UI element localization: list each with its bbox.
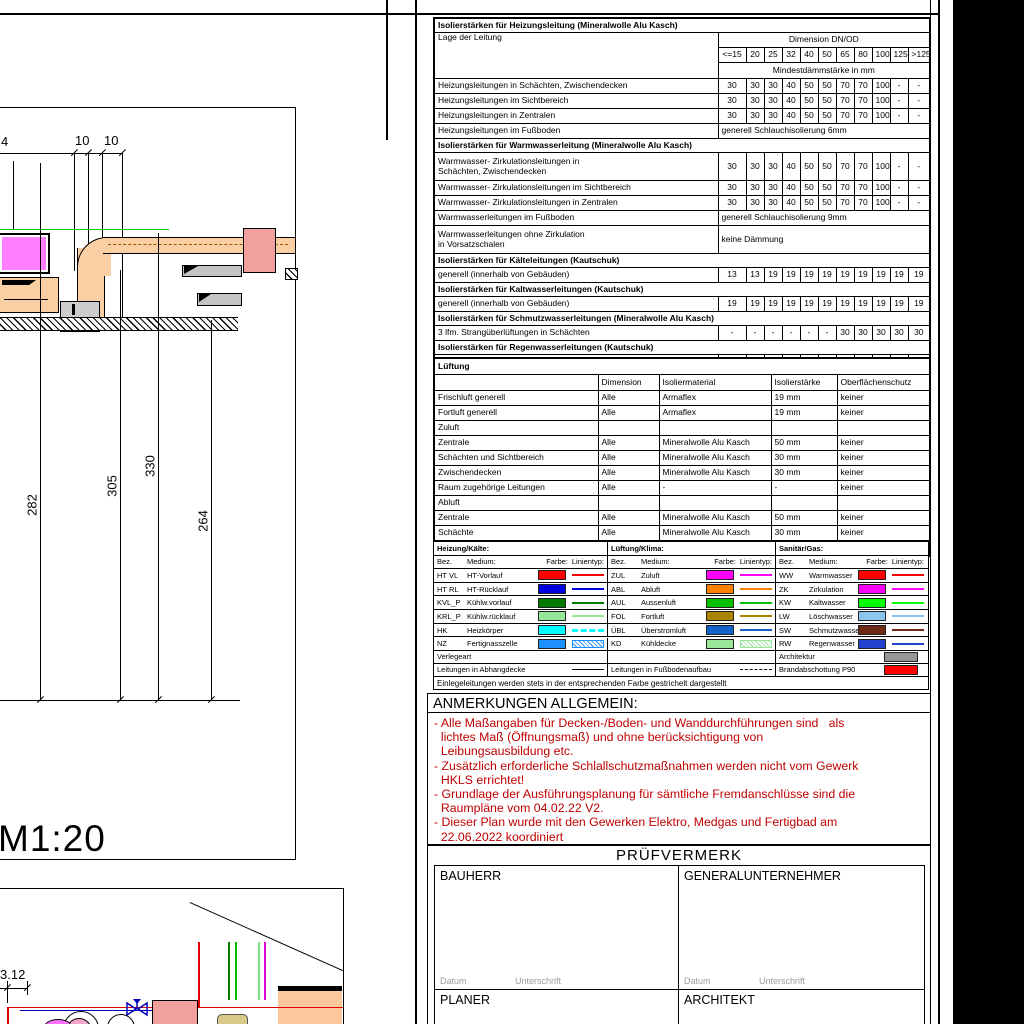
value-cell: keiner — [837, 406, 930, 421]
dim-ext — [7, 981, 8, 1003]
legend-item: ZULZuluft — [607, 569, 775, 582]
value-cell: 100 — [872, 79, 890, 94]
value-cell: Alle — [598, 436, 659, 451]
legend-item-medium: Zuluft — [641, 571, 706, 580]
verlegeart-label-cell: Verlegeart — [434, 651, 607, 663]
dim-value: 4 — [1, 135, 8, 148]
legend-linetype-hatch — [740, 640, 772, 648]
annotation-line: Leibungsausbildung etc. — [434, 744, 930, 758]
legend-linetype-line — [740, 629, 772, 631]
table-section-row: Lüftung — [434, 358, 930, 375]
unit-line — [4, 299, 48, 300]
legend-item-medium: Kühlw.rücklauf — [467, 612, 538, 621]
legend-item-medium: Aussenluft — [641, 598, 706, 607]
value-cell: 19 — [818, 297, 836, 312]
table-section-row: Isolierstärken für Regenwasserleitungen … — [434, 341, 930, 355]
row-label-cell: Heizungsleitungen in Schächten, Zwischen… — [434, 79, 718, 94]
row-label-cell: Warmwasserleitungen im Fußboden — [434, 211, 718, 226]
table-row: Abluft — [434, 496, 930, 511]
value-cell: 100 — [872, 94, 890, 109]
legend-item-medium: Überstromluft — [641, 626, 706, 635]
row-label-cell: Heizungsleitungen im Fußboden — [434, 124, 718, 139]
annotation-line: - Alle Maßangaben für Decken-/Boden- und… — [434, 716, 930, 730]
legend-linetype-line — [572, 602, 604, 604]
legend-column-header-row: Bez.Medium:Farbe:Linientyp:Bez.Medium:Fa… — [434, 556, 928, 570]
dim-size-cell: 125 — [890, 48, 908, 63]
value-cell: 70 — [854, 79, 872, 94]
value-cell: 30 — [746, 94, 764, 109]
legend-item-bez: HT VL — [437, 571, 467, 580]
value-cell: 50 — [800, 109, 818, 124]
legend-color-swatch — [538, 611, 566, 621]
legend-item-bez: KW — [779, 598, 809, 607]
value-cell: 19 — [836, 297, 854, 312]
legend-linetype-line — [892, 574, 924, 576]
value-cell: 19 — [890, 297, 908, 312]
value-cell: Zentrale — [434, 436, 598, 451]
legend-item: ÜBLÜberstromluft — [607, 624, 775, 637]
legend-color-swatch — [858, 639, 886, 649]
legend-color-swatch — [858, 598, 886, 608]
table-row: Zuluft — [434, 421, 930, 436]
value-cell: 70 — [836, 181, 854, 196]
value-cell — [598, 496, 659, 511]
legend-color-swatch — [538, 598, 566, 608]
section-title-cell: Isolierstärken für Kälteleitungen (Kauts… — [434, 254, 930, 268]
dim-size-cell: 65 — [836, 48, 854, 63]
value-cell: Mineralwolle Alu Kasch — [659, 466, 771, 481]
legend-linetype-line — [892, 602, 924, 604]
legend-linetype-line — [892, 643, 924, 645]
floor-slab — [0, 317, 238, 331]
value-cell: keiner — [837, 511, 930, 526]
table-row: Schächten und SichtbereichAlleMineralwol… — [434, 451, 930, 466]
value-cell: 30 — [718, 109, 746, 124]
legend-item-bez: AUL — [611, 598, 641, 607]
value-cell: Raum zugehörige Leitungen — [434, 481, 598, 496]
value-cell: 19 — [764, 297, 782, 312]
value-cell: 50 — [818, 79, 836, 94]
value-cell: 13 — [718, 268, 746, 283]
legend-col-bez: Bez. — [437, 557, 467, 566]
value-cell: Alle — [598, 406, 659, 421]
legend-item: NZFertignasszelle — [434, 638, 607, 651]
architektur-label: Architektur — [779, 652, 884, 661]
value-cell: 19 — [908, 268, 930, 283]
value-cell: 70 — [854, 109, 872, 124]
value-cell: 19 — [836, 268, 854, 283]
min-thickness-header-cell: Mindestdämmstärke in mm — [718, 63, 930, 79]
approval-title: PRÜFVERMERK — [428, 846, 930, 864]
value-cell: keiner — [837, 436, 930, 451]
legend-item: KDKühldecke — [607, 638, 775, 651]
legend-linetype-line — [892, 615, 924, 617]
column-header-cell: Oberflächenschutz — [837, 375, 930, 391]
legend-item-medium: HT-Rücklauf — [467, 585, 538, 594]
value-cell: 30 — [764, 109, 782, 124]
unterschrift-label: Unterschrift — [515, 976, 561, 986]
value-cell: 40 — [782, 181, 800, 196]
legend-color-swatch — [706, 570, 734, 580]
legend-item-bez: WW — [779, 571, 809, 580]
approval-cell-label: GENERALUNTERNEHMER — [684, 869, 841, 883]
value-cell: Fortluft generell — [434, 406, 598, 421]
table-row: Heizungsleitungen in Zentralen3030304050… — [434, 109, 930, 124]
value-cell: Mineralwolle Alu Kasch — [659, 451, 771, 466]
value-cell: Mineralwolle Alu Kasch — [659, 526, 771, 541]
fertignasszelle-unit — [0, 233, 50, 274]
value-cell: - — [800, 326, 818, 341]
value-cell: - — [908, 153, 930, 181]
section-title-cell: Isolierstärken für Regenwasserleitungen … — [434, 341, 930, 355]
lueftung-title-cell: Lüftung — [434, 358, 930, 375]
approval-cell-label: ARCHITEKT — [684, 993, 755, 1007]
damper-wedge — [199, 294, 211, 302]
legend-col-linientyp: Linientyp: — [892, 557, 924, 566]
value-cell: - — [908, 196, 930, 211]
fussboden-label: Leitungen in Fußbodenaufbau — [611, 665, 740, 674]
fire-collar — [243, 228, 276, 273]
legend-color-swatch — [858, 570, 886, 580]
value-cell: 70 — [854, 94, 872, 109]
value-cell: 19 — [800, 297, 818, 312]
column-header-cell: Isoliermaterial — [659, 375, 771, 391]
value-cell: 30 — [890, 326, 908, 341]
value-cell: - — [890, 109, 908, 124]
value-cell: keiner — [837, 526, 930, 541]
annotation-line: 22.06.2022 koordiniert — [434, 830, 930, 844]
legend-item-row: KVL_PKühlw.vorlaufAULAussenluftKWKaltwas… — [434, 596, 928, 610]
dim-value-264: 264 — [196, 510, 211, 532]
value-cell: 30 — [718, 196, 746, 211]
legend-linetype-line — [740, 615, 772, 617]
legend-table: Heizung/Kälte:Lüftung/Klima:Sanitär/Gas:… — [433, 541, 929, 690]
table-section-row: Isolierstärken für Kaltwasserleitungen (… — [434, 283, 930, 297]
value-cell: 40 — [782, 153, 800, 181]
riser-red — [198, 942, 200, 1008]
value-cell: 40 — [782, 94, 800, 109]
value-cell: 40 — [782, 109, 800, 124]
valve-icon — [124, 996, 150, 1018]
dimension-header-cell: Dimension DN/OD — [718, 33, 930, 48]
section-title-cell: Isolierstärken für Schmutzwasserleitunge… — [434, 312, 930, 326]
value-cell: 30 — [764, 196, 782, 211]
legend-item: ZKZirkulation — [775, 583, 927, 596]
dim-size-cell: <=15 — [718, 48, 746, 63]
value-cell: 30 — [872, 326, 890, 341]
value-cell: 30 — [764, 94, 782, 109]
legend-installation-row: Leitungen in AbhangdeckeLeitungen in Fuß… — [434, 664, 928, 677]
table-row: Frischluft generellAlleArmaflex19 mmkein… — [434, 391, 930, 406]
value-cell: Alle — [598, 391, 659, 406]
dim-ext — [13, 161, 14, 229]
value-cell: 50 mm — [771, 436, 837, 451]
value-cell: Schächte — [434, 526, 598, 541]
column-header-cell: Dimension — [598, 375, 659, 391]
legend-item-medium: Fortluft — [641, 612, 706, 621]
frame-divider-short — [386, 0, 388, 140]
green-pipe-line — [0, 229, 169, 230]
value-cell: 19 — [854, 268, 872, 283]
legend-item-bez: KRL_P — [437, 612, 467, 621]
fussboden-cell: Leitungen in Fußbodenaufbau — [607, 664, 775, 676]
legend-item-bez: ZK — [779, 585, 809, 594]
legend-item: RWRegenwasser — [775, 638, 927, 651]
approval-box: PRÜFVERMERK BAUHERR Datum Unterschrift G… — [427, 845, 931, 1024]
table-row: generell (innerhalb von Gebäuden)1313191… — [434, 268, 930, 283]
legend-item-row: HT RLHT-RücklaufABLAbluftZKZirkulation — [434, 583, 928, 597]
approval-cell-generalunternehmer: GENERALUNTERNEHMER Datum Unterschrift — [678, 865, 925, 990]
value-cell: Alle — [598, 526, 659, 541]
row-label-cell: Warmwasser- Zirkulationsleitungen in Zen… — [434, 196, 718, 211]
datum-label: Datum — [684, 976, 711, 986]
table-row: ZwischendeckenAlleMineralwolle Alu Kasch… — [434, 466, 930, 481]
value-cell: - — [782, 326, 800, 341]
row-label-cell: generell (innerhalb von Gebäuden) — [434, 297, 718, 312]
value-cell: 19 — [872, 268, 890, 283]
row-label-cell: Warmwasserleitungen ohne Zirkulation in … — [434, 226, 718, 254]
legend-item-bez: FOL — [611, 612, 641, 621]
sheet-edge-black — [953, 0, 1024, 1024]
dim-value: 10 — [104, 134, 118, 147]
orange-unit-cap — [278, 986, 342, 991]
legend-color-swatch — [706, 611, 734, 621]
lueftung-table-body: LüftungDimensionIsoliermaterialIsolierst… — [434, 358, 930, 556]
table-section-row: Isolierstärken für Heizungsleitung (Mine… — [434, 18, 930, 33]
value-cell: 100 — [872, 109, 890, 124]
column-header-cell — [434, 375, 598, 391]
value-cell: 30 — [718, 153, 746, 181]
legend-color-swatch — [706, 584, 734, 594]
legend-item-medium: Warmwasser — [809, 571, 858, 580]
merged-value-cell: generell Schlauchisolierung 9mm — [718, 211, 930, 226]
table-row: Warmwasser- Zirkulationsleitungen in Sch… — [434, 153, 930, 181]
column-header-cell: Isolierstärke — [771, 375, 837, 391]
legend-note: Einlegeleitungen werden stets in der ent… — [434, 677, 928, 691]
architektur-swatch — [884, 652, 918, 662]
legend-item-row: HT VLHT-VorlaufZULZuluftWWWarmwasser — [434, 569, 928, 583]
legend-color-swatch — [706, 625, 734, 635]
value-cell: Abluft — [434, 496, 598, 511]
section-drawing-1: 4 10 10 — [0, 107, 296, 860]
value-cell: 100 — [872, 153, 890, 181]
table-row: Heizungsleitungen in Schächten, Zwischen… — [434, 79, 930, 94]
legend-item: KWKaltwasser — [775, 596, 927, 609]
value-cell: - — [890, 79, 908, 94]
value-cell: 30 — [718, 94, 746, 109]
value-cell: 50 — [800, 94, 818, 109]
plan-sheet: 4 10 10 — [0, 0, 1024, 1024]
legend-col-bez: Bez. — [611, 557, 641, 566]
value-cell: Mineralwolle Alu Kasch — [659, 511, 771, 526]
annotations-body: - Alle Maßangaben für Decken-/Boden- und… — [428, 713, 930, 844]
value-cell: 30 mm — [771, 466, 837, 481]
dim-size-cell: >125 — [908, 48, 930, 63]
legend-item-bez: SW — [779, 626, 809, 635]
collar-mark — [72, 304, 75, 315]
approval-grid: BAUHERR Datum Unterschrift GENERALUNTERN… — [434, 865, 925, 1024]
value-cell: 70 — [836, 94, 854, 109]
value-cell: 50 — [800, 79, 818, 94]
legend-color-swatch — [538, 570, 566, 580]
value-cell: 19 — [746, 297, 764, 312]
value-cell: 50 — [818, 109, 836, 124]
value-cell: 30 mm — [771, 451, 837, 466]
value-cell — [659, 421, 771, 436]
value-cell: 30 — [746, 153, 764, 181]
legend-color-swatch — [706, 598, 734, 608]
annotation-line: - Dieser Plan wurde mit den Gewerken Ele… — [434, 815, 930, 829]
verlegeart-empty-cell — [607, 651, 775, 663]
value-cell: 50 — [818, 181, 836, 196]
approval-cell-label: PLANER — [440, 993, 490, 1007]
value-cell: 70 — [854, 196, 872, 211]
insulation-table: Isolierstärken für Heizungsleitung (Mine… — [433, 17, 931, 371]
value-cell: - — [890, 94, 908, 109]
legend-color-swatch — [538, 584, 566, 594]
approval-cell-planer: PLANER — [434, 989, 679, 1024]
row-label-cell: Heizungsleitungen im Sichtbereich — [434, 94, 718, 109]
legend-item-bez: KVL_P — [437, 598, 467, 607]
legend-linetype-line — [740, 602, 772, 604]
legend-item-medium: Heizkörper — [467, 626, 538, 635]
row-label-cell: generell (innerhalb von Gebäuden) — [434, 268, 718, 283]
value-cell: 30 — [718, 79, 746, 94]
legend-item-medium: Fertignasszelle — [467, 639, 538, 648]
table-header-row: DimensionIsoliermaterialIsolierstärkeObe… — [434, 375, 930, 391]
riser-green — [235, 942, 237, 1000]
abhangdecke-label: Leitungen in Abhangdecke — [437, 665, 572, 674]
annotation-line: - Grundlage der Ausführungsplanung für s… — [434, 787, 930, 801]
legend-color-swatch — [858, 625, 886, 635]
legend-color-swatch — [538, 639, 566, 649]
value-cell: keiner — [837, 466, 930, 481]
value-cell: - — [818, 326, 836, 341]
legend-verlegeart-row: VerlegeartArchitektur — [434, 651, 928, 664]
value-cell: 40 — [782, 196, 800, 211]
dim-line-264 — [211, 320, 212, 701]
table-row: Warmwasserleitungen im Fußbodengenerell … — [434, 211, 930, 226]
value-cell: 30 — [764, 181, 782, 196]
value-cell: - — [890, 153, 908, 181]
lueftung-table: LüftungDimensionIsoliermaterialIsolierst… — [433, 357, 931, 557]
value-cell: - — [659, 481, 771, 496]
section-title-cell: Isolierstärken für Kaltwasserleitungen (… — [434, 283, 930, 297]
value-cell: - — [771, 481, 837, 496]
legend-linetype-line — [892, 629, 924, 631]
legend-linetype-hatch — [572, 640, 604, 648]
legend-item-medium: Abluft — [641, 585, 706, 594]
row-label-cell: 3 lfm. Strangüberlüftungen in Schächten — [434, 326, 718, 341]
annotation-line: HKLS errichtet! — [434, 773, 930, 787]
table-header-row: Lage der LeitungDimension DN/OD — [434, 33, 930, 48]
dim-size-cell: 20 — [746, 48, 764, 63]
dim-size-cell: 40 — [800, 48, 818, 63]
value-cell: 19 — [818, 268, 836, 283]
dim-size-cell: 32 — [782, 48, 800, 63]
value-cell: 50 — [800, 181, 818, 196]
section-title-cell: Isolierstärken für Heizungsleitung (Mine… — [434, 18, 930, 33]
annotation-line: Raumpläne vom 04.02.22 V2. — [434, 801, 930, 815]
value-cell: 50 — [818, 94, 836, 109]
pink-unit — [152, 1000, 198, 1024]
value-cell — [771, 496, 837, 511]
frame-divider — [415, 0, 417, 1024]
dim-size-cell: 80 — [854, 48, 872, 63]
dim-size-cell: 50 — [818, 48, 836, 63]
legend-col-farbe: Farbe: — [866, 557, 888, 566]
table-row: SchächteAlleMineralwolle Alu Kasch30 mmk… — [434, 526, 930, 541]
legend-item-medium: Zirkulation — [809, 585, 858, 594]
annotations-box: ANMERKUNGEN ALLGEMEIN: - Alle Maßangaben… — [427, 693, 931, 845]
value-cell: 19 — [718, 297, 746, 312]
pipe-red-vertical — [7, 1007, 9, 1024]
dim-line-330 — [158, 233, 159, 701]
legend-linetype-line — [892, 588, 924, 590]
legend-item: FOLFortluft — [607, 610, 775, 623]
legend-item: AULAussenluft — [607, 596, 775, 609]
legend-color-swatch — [538, 625, 566, 635]
table-row: Heizungsleitungen im Fußbodengenerell Sc… — [434, 124, 930, 139]
dim-value-312: 3.12 — [0, 968, 25, 981]
value-cell: 19 — [782, 268, 800, 283]
brandabschottung-swatch — [884, 665, 918, 675]
value-cell: 70 — [836, 109, 854, 124]
legend-item-row: NZFertignasszelleKDKühldeckeRWRegenwasse… — [434, 638, 928, 652]
hatched-plate — [285, 268, 298, 280]
legend-item: KRL_PKühlw.rücklauf — [434, 610, 607, 623]
value-cell: - — [890, 196, 908, 211]
damper-wedge — [184, 266, 198, 274]
value-cell: 13 — [746, 268, 764, 283]
legend-item-bez: KD — [611, 639, 641, 648]
legend-linetype-line — [572, 629, 604, 632]
abhangdecke-cell: Leitungen in Abhangdecke — [434, 664, 607, 676]
annotation-line: - Zusätzlich erforderliche Schlallschutz… — [434, 759, 930, 773]
table-row: Warmwasser- Zirkulationsleitungen in Zen… — [434, 196, 930, 211]
legend-col-medium: Medium: — [809, 557, 866, 566]
value-cell: Alle — [598, 451, 659, 466]
tan-unit — [217, 1014, 248, 1024]
legend-group-title: Sanitär/Gas: — [775, 542, 927, 555]
legend-color-swatch — [858, 611, 886, 621]
value-cell: 30 — [746, 109, 764, 124]
annotation-line: lichtes Maß (Öffnungsmaß) und ohne berüc… — [434, 730, 930, 744]
row-label-cell: Heizungsleitungen in Zentralen — [434, 109, 718, 124]
legend-col-linientyp: Linientyp: — [572, 557, 604, 566]
table-row: Warmwasserleitungen ohne Zirkulation in … — [434, 226, 930, 254]
riser-palegreen — [258, 942, 260, 1000]
value-cell: 19 — [854, 297, 872, 312]
unterschrift-label: Unterschrift — [759, 976, 805, 986]
dim-line-282 — [40, 163, 41, 701]
dim-line-top — [0, 153, 122, 154]
value-cell: 19 — [908, 297, 930, 312]
value-cell: 50 — [818, 153, 836, 181]
legend-item: HT VLHT-Vorlauf — [434, 569, 607, 582]
brandabschottung-cell: Brandabschottung P90 — [775, 664, 927, 676]
value-cell: 19 — [872, 297, 890, 312]
legend-item-medium: Löschwasser — [809, 612, 858, 621]
legend-item-medium: HT-Vorlauf — [467, 571, 538, 580]
table-row: Fortluft generellAlleArmaflex19 mmkeiner — [434, 406, 930, 421]
legend-column-headers: Bez.Medium:Farbe:Linientyp: — [434, 556, 607, 569]
value-cell: - — [764, 326, 782, 341]
dim-size-cell: 100 — [872, 48, 890, 63]
section-drawing-2: 3.12 — [0, 888, 344, 1024]
legend-item: HKHeizkörper — [434, 624, 607, 637]
value-cell: 30 — [764, 79, 782, 94]
